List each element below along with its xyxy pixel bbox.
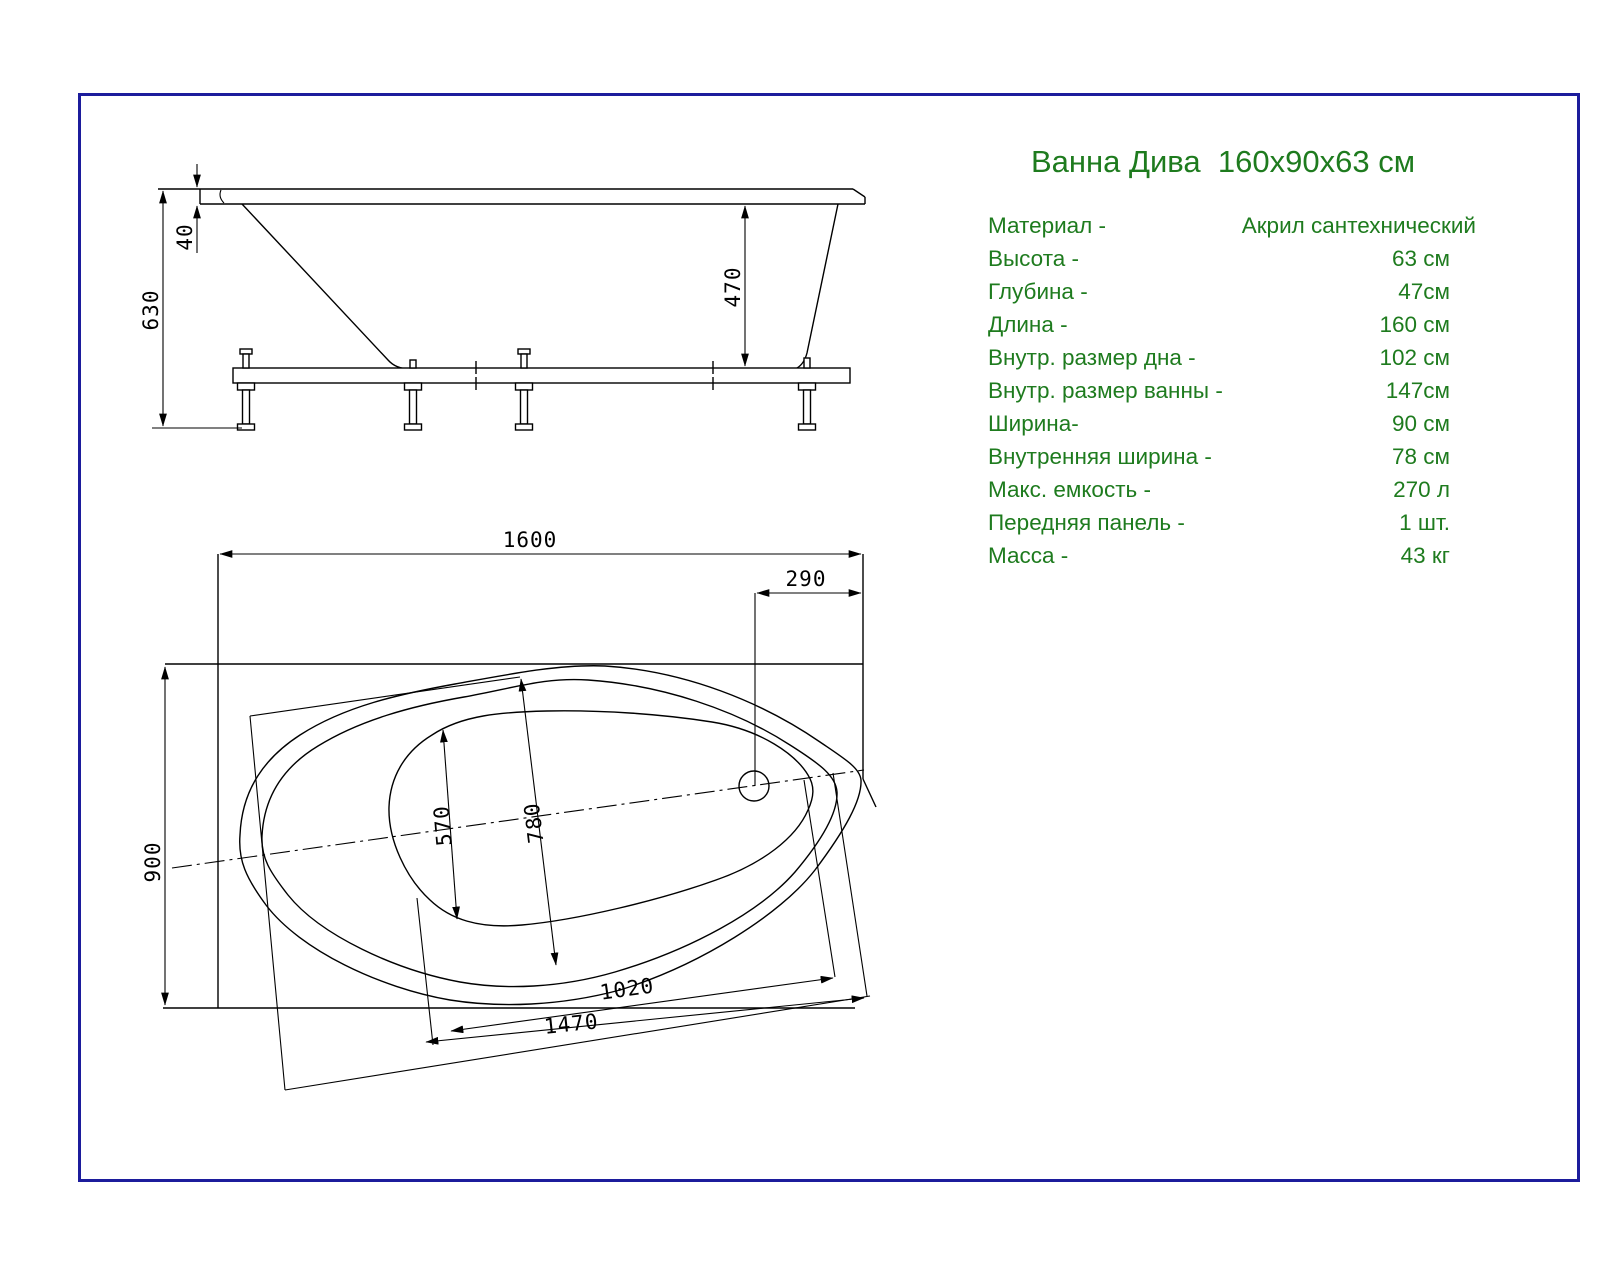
spec-row-inner-size: Внутр. размер ванны - 147см [988,378,1450,411]
spec-label: Внутр. размер ванны - [988,378,1223,404]
spec-label: Внутренняя ширина - [988,444,1212,470]
dimension-1020: 1020 [451,973,833,1031]
spec-label: Ширина- [988,411,1079,437]
dim-40-text: 40 [173,223,197,250]
spec-value: 102 см [1379,345,1450,371]
page-title: Ванна Дива 160x90x63 см [988,144,1458,180]
dim-780-text: 780 [520,801,549,845]
dim-570-text: 570 [429,804,456,847]
spec-row-material: Материал - Акрил сантехнический [988,213,1450,246]
spec-value: 147см [1386,378,1450,404]
spec-value: Акрил сантехнический [1242,213,1476,239]
spec-row-capacity: Макс. емкость - 270 л [988,477,1450,510]
spec-value: 160 см [1379,312,1450,338]
dim-1470-text: 1470 [543,1009,600,1039]
dim-1600-text: 1600 [503,528,558,552]
spec-value: 90 см [1392,411,1450,437]
dimension-40: 40 [173,164,197,253]
spec-label: Внутр. размер дна - [988,345,1196,371]
spec-row-depth: Глубина - 47см [988,279,1450,312]
spec-value: 78 см [1392,444,1450,470]
spec-label: Макс. емкость - [988,477,1151,503]
spec-label: Масса - [988,543,1068,569]
dimension-780: 780 [520,679,556,965]
dim-290-text: 290 [786,567,827,591]
spec-value: 63 см [1392,246,1450,272]
spec-label: Высота - [988,246,1079,272]
spec-label: Глубина - [988,279,1088,305]
dimension-900: 900 [141,667,165,1005]
spec-sheet-page: 630 40 470 [0,0,1600,1280]
spec-row-length: Длина - 160 см [988,312,1450,345]
spec-label: Передняя панель - [988,510,1185,536]
foot-3 [516,349,533,430]
dim-1020-text: 1020 [598,973,655,1004]
dim-900-text: 900 [141,842,165,883]
spec-label: Длина - [988,312,1068,338]
spec-row-mass: Масса - 43 кг [988,543,1450,576]
plan-view: 1600 900 290 570 780 [141,528,876,1090]
center-line [172,770,864,868]
spec-table: Материал - Акрил сантехнический Высота -… [988,213,1450,576]
side-view: 630 40 470 [139,164,865,430]
spec-row-height: Высота - 63 см [988,246,1450,279]
spec-row-bottom-size: Внутр. размер дна - 102 см [988,345,1450,378]
spec-value: 270 л [1393,477,1450,503]
dimension-1600: 1600 [220,528,861,554]
spec-row-inner-width: Внутренняя ширина - 78 см [988,444,1450,477]
dim-630-text: 630 [139,290,163,331]
technical-drawing: 630 40 470 [0,0,1600,1280]
dim-470-text: 470 [721,267,745,308]
dimension-290: 290 [755,567,861,786]
spec-row-width: Ширина- 90 см [988,411,1450,444]
tub-outer-edge [240,666,861,1005]
dimension-570: 570 [429,730,457,919]
dimension-470: 470 [721,206,745,366]
spec-value: 43 кг [1401,543,1450,569]
spec-label: Материал - [988,213,1106,239]
tub-inner-edge [262,679,837,986]
spec-value: 1 шт. [1399,510,1450,536]
spec-row-front-panel: Передняя панель - 1 шт. [988,510,1450,543]
foot-1 [238,349,255,430]
spec-value: 47см [1398,279,1450,305]
